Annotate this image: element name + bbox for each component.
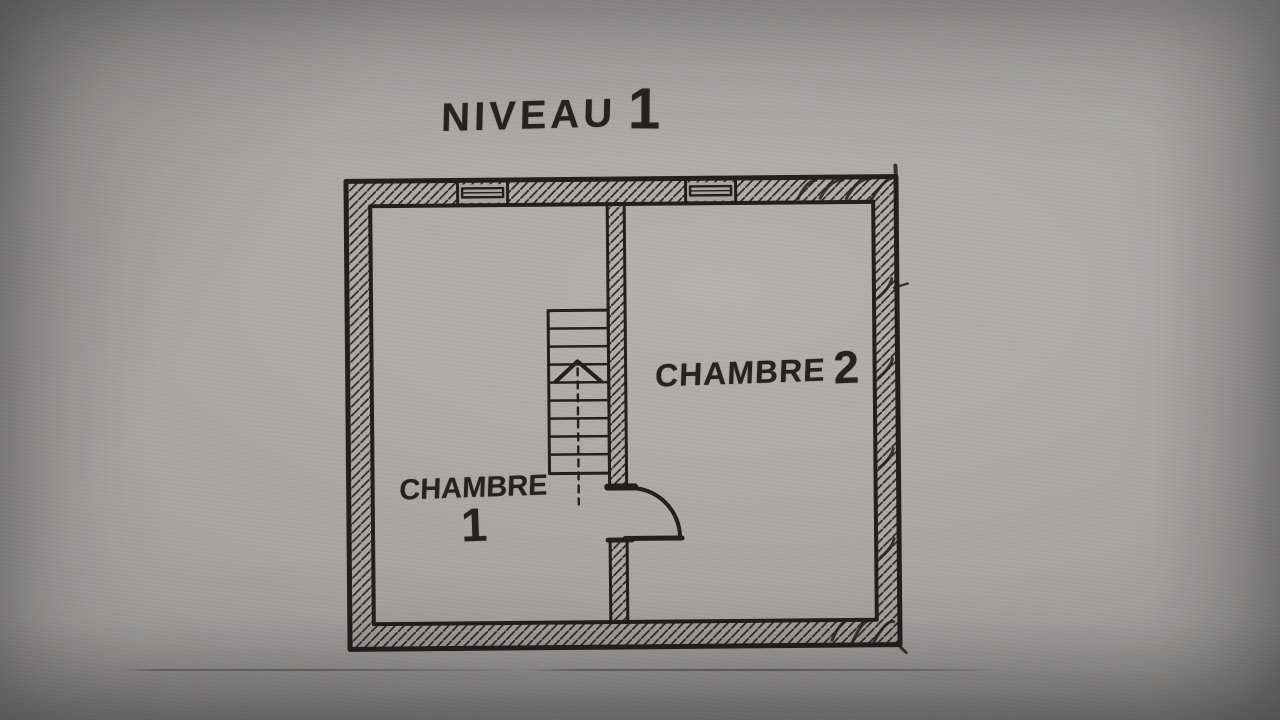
- room-label-chambre-2: CHAMBRE 2: [654, 346, 860, 395]
- page-title: NIVEAU 1: [440, 81, 662, 142]
- room-1-name: CHAMBRE: [399, 469, 548, 507]
- room-1-number: 1: [400, 502, 549, 547]
- window-1: [457, 182, 508, 203]
- door-swing: [625, 487, 682, 538]
- staircase: [548, 310, 610, 505]
- window-2: [685, 180, 736, 201]
- page-title-number: 1: [628, 81, 662, 136]
- page-title-word: NIVEAU: [441, 89, 617, 142]
- room-label-chambre-1: CHAMBRE 1: [399, 469, 549, 547]
- printed-baseline-rule: [118, 669, 1008, 671]
- room-2-name: CHAMBRE: [654, 352, 826, 395]
- stair-walk-line: [578, 368, 579, 504]
- photographed-paper-sheet: NIVEAU 1 CHAMBRE 1 CHAMBRE 2: [0, 0, 1280, 720]
- room-2-number: 2: [833, 346, 861, 388]
